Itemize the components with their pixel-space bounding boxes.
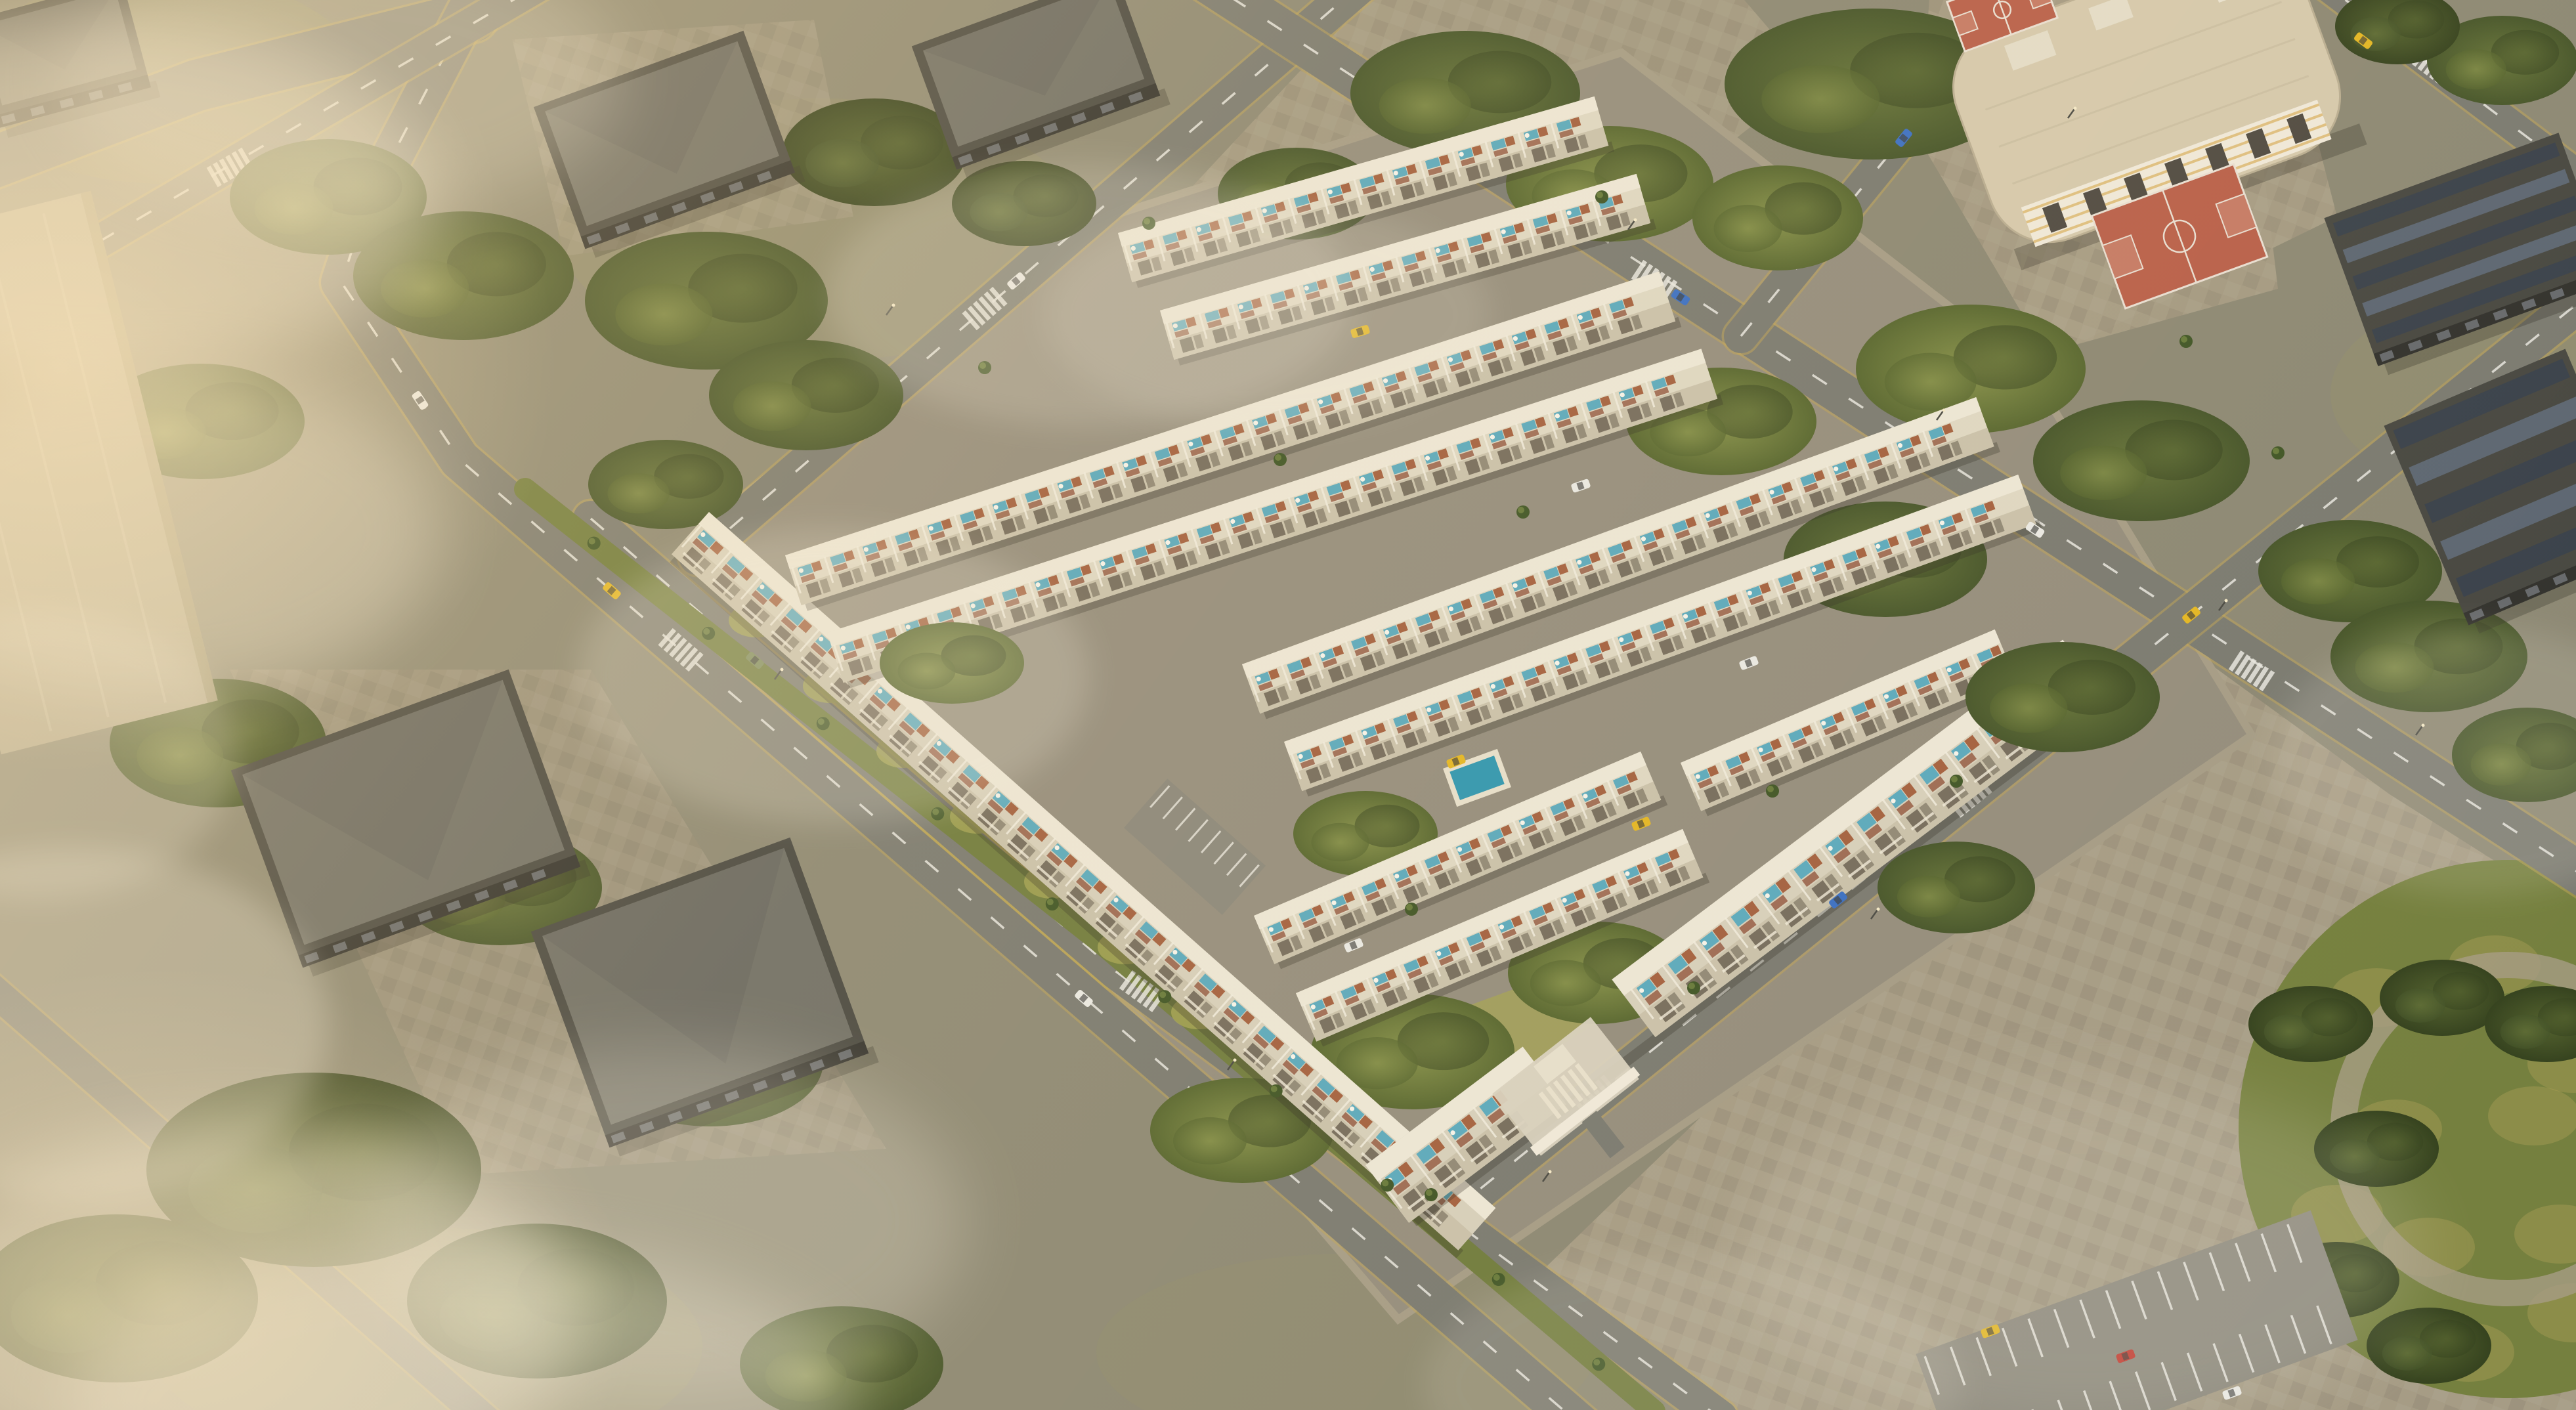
scene-svg [0, 0, 2576, 1410]
aerial-render [0, 0, 2576, 1410]
